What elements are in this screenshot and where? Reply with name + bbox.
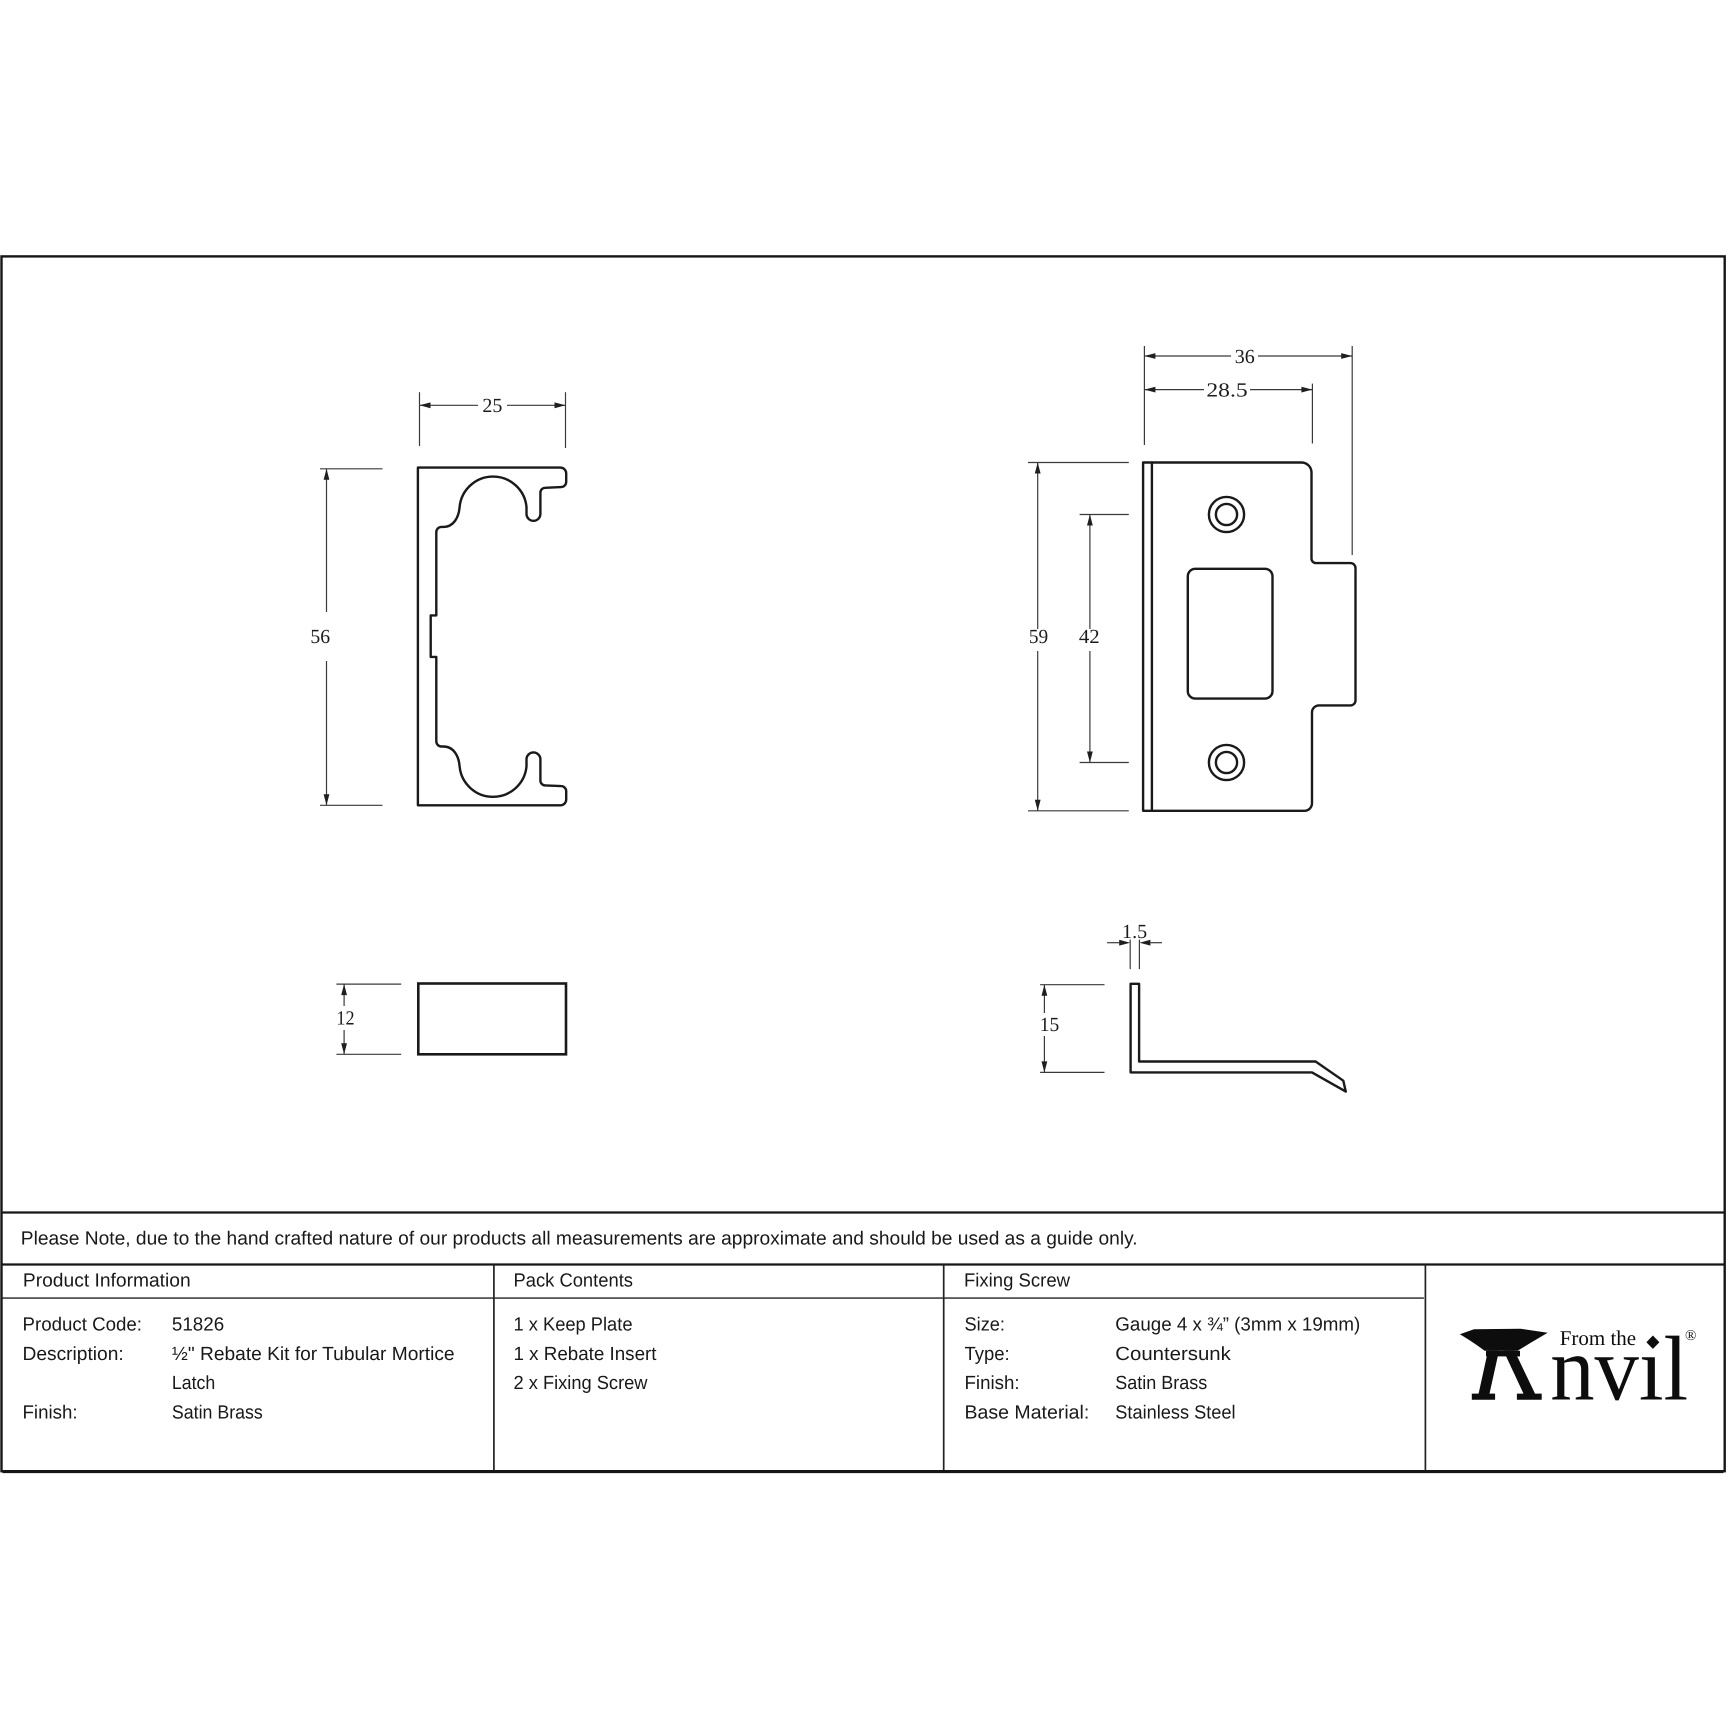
svg-text:51826: 51826: [172, 1314, 224, 1335]
svg-text:Stainless Steel: Stainless Steel: [1115, 1403, 1235, 1424]
svg-text:nvıl: nvıl: [1550, 1318, 1688, 1420]
svg-text:Satin Brass: Satin Brass: [1115, 1373, 1207, 1394]
svg-text:12: 12: [336, 1008, 354, 1030]
svg-text:25: 25: [482, 395, 502, 417]
svg-text:Base Material:: Base Material:: [965, 1403, 1090, 1424]
svg-text:Description:: Description:: [23, 1344, 124, 1365]
svg-text:Fixing Screw: Fixing Screw: [964, 1270, 1070, 1291]
svg-text:Product Information: Product Information: [23, 1270, 191, 1291]
svg-text:1 x Rebate Insert: 1 x Rebate Insert: [514, 1344, 658, 1365]
svg-text:Type:: Type:: [965, 1344, 1010, 1365]
svg-text:Finish:: Finish:: [965, 1373, 1020, 1394]
svg-text:2 x Fixing Screw: 2 x Fixing Screw: [514, 1373, 648, 1394]
svg-text:Finish:: Finish:: [23, 1403, 78, 1424]
svg-text:56: 56: [310, 626, 330, 648]
svg-text:Size:: Size:: [965, 1314, 1006, 1335]
svg-text:Product Code:: Product Code:: [23, 1314, 143, 1335]
svg-text:15: 15: [1040, 1014, 1060, 1036]
svg-text:28.5: 28.5: [1206, 380, 1247, 402]
svg-text:1 x Keep Plate: 1 x Keep Plate: [514, 1314, 633, 1335]
svg-text:Pack Contents: Pack Contents: [514, 1270, 634, 1291]
svg-text:Please Note, due to the hand c: Please Note, due to the hand crafted nat…: [21, 1229, 1138, 1250]
svg-text:42: 42: [1079, 626, 1100, 648]
svg-text:1.5: 1.5: [1122, 921, 1147, 943]
svg-text:®: ®: [1685, 1328, 1696, 1344]
svg-text:Gauge 4 x ¾” (3mm x 19mm): Gauge 4 x ¾” (3mm x 19mm): [1115, 1314, 1360, 1335]
svg-text:Countersunk: Countersunk: [1115, 1344, 1231, 1365]
svg-text:Satin Brass: Satin Brass: [172, 1403, 263, 1424]
svg-text:36: 36: [1235, 346, 1255, 368]
svg-text:½" Rebate Kit for Tubular Mort: ½" Rebate Kit for Tubular Mortice: [172, 1344, 455, 1365]
svg-text:59: 59: [1029, 626, 1048, 648]
svg-text:Latch: Latch: [172, 1373, 215, 1394]
